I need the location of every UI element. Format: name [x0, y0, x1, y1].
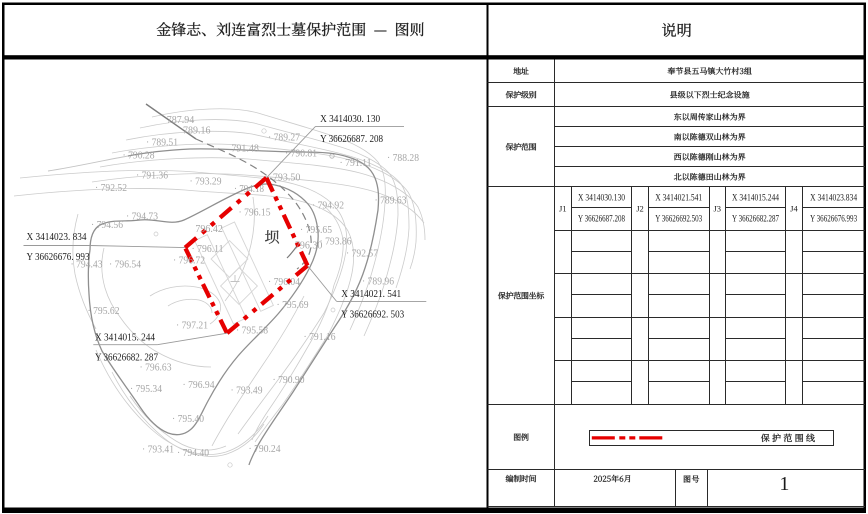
svg-text:· 793.86: · 793.86	[320, 237, 352, 248]
svg-text:X 3414030.130: X 3414030.130	[578, 192, 625, 202]
svg-text:· 791.16: · 791.16	[304, 332, 336, 343]
svg-text:· 795.62: · 795.62	[88, 306, 120, 317]
svg-text:· 789.51: · 789.51	[146, 138, 178, 149]
svg-text:· 795.69: · 795.69	[277, 300, 309, 311]
svg-text:X 3414023.834: X 3414023.834	[810, 192, 857, 202]
svg-text:791.48: 791.48	[231, 144, 259, 155]
svg-text:X 3414021.541: X 3414021.541	[655, 192, 702, 202]
svg-text:J3: J3	[713, 204, 721, 214]
svg-text:· 790.28: · 790.28	[123, 151, 155, 162]
svg-text:Y 36626676.993: Y 36626676.993	[810, 214, 857, 224]
svg-text:· 796.04: · 796.04	[268, 277, 301, 288]
svg-text:· 789.63: · 789.63	[375, 196, 407, 207]
svg-text:796.42: 796.42	[195, 224, 223, 235]
svg-text:787.94: 787.94	[167, 115, 195, 126]
svg-text:789.16: 789.16	[183, 126, 211, 137]
svg-text:· 790.81: · 790.81	[285, 149, 317, 160]
svg-text:1: 1	[779, 473, 789, 495]
svg-text:Y 36626687. 208: Y 36626687. 208	[320, 134, 383, 145]
svg-text:· 794.73: · 794.73	[126, 212, 158, 223]
svg-text:· 793.29: · 793.29	[190, 177, 222, 188]
svg-text:· 789.27: · 789.27	[268, 133, 300, 144]
svg-text:· 793.41: · 793.41	[142, 445, 174, 456]
svg-text:Y 36626682.287: Y 36626682.287	[732, 214, 779, 224]
svg-text:Y 36626692. 503: Y 36626692. 503	[341, 309, 404, 320]
svg-text:· 794.92: · 794.92	[312, 201, 344, 212]
svg-text:Y 36626676. 993: Y 36626676. 993	[27, 252, 90, 263]
svg-text:· 788.28: · 788.28	[387, 153, 419, 164]
svg-text:J4: J4	[790, 204, 798, 214]
svg-text:· 790.24: · 790.24	[249, 444, 282, 455]
svg-text:· 791.11: · 791.11	[340, 158, 372, 169]
svg-text:· 792.52: · 792.52	[95, 183, 127, 194]
svg-text:Y 36626682. 287: Y 36626682. 287	[95, 353, 158, 364]
svg-text:· 796.11: · 796.11	[192, 244, 224, 255]
svg-text:X 3414023. 834: X 3414023. 834	[27, 232, 88, 243]
svg-text:· 796.94: · 796.94	[183, 380, 216, 391]
svg-text:· 796.63: · 796.63	[140, 363, 172, 374]
svg-text:Y 36626687.208: Y 36626687.208	[578, 214, 625, 224]
svg-text:· 795.34: · 795.34	[130, 384, 163, 395]
svg-text:· 795.58: · 795.58	[236, 326, 268, 337]
svg-text:793.50: 793.50	[273, 173, 301, 184]
svg-text:· 791.36: · 791.36	[136, 171, 168, 182]
svg-text:· 796.15: · 796.15	[239, 208, 271, 219]
svg-text:· 797.21: · 797.21	[176, 321, 208, 332]
svg-text:796.30: 796.30	[295, 241, 323, 252]
svg-text:J2: J2	[636, 204, 644, 214]
svg-text:J1: J1	[559, 204, 567, 214]
svg-text:· 794.40: · 794.40	[177, 448, 209, 459]
svg-text:X 3414021. 541: X 3414021. 541	[341, 289, 401, 300]
svg-text:Y 36626692.503: Y 36626692.503	[655, 214, 702, 224]
svg-text:· 790.90: · 790.90	[273, 375, 305, 386]
svg-text:· 792.57: · 792.57	[346, 249, 378, 260]
svg-text:· 794.56: · 794.56	[91, 220, 123, 231]
svg-text:· 795.40: · 795.40	[172, 414, 204, 425]
svg-text:X 3414030. 130: X 3414030. 130	[320, 114, 380, 125]
svg-text:X 3414015.244: X 3414015.244	[732, 192, 779, 202]
svg-text:· 793.49: · 793.49	[231, 386, 263, 397]
svg-text:· 795.65: · 795.65	[300, 225, 332, 236]
svg-text:· 796.72: · 796.72	[173, 256, 205, 267]
svg-text:· 789.96: · 789.96	[362, 277, 394, 288]
svg-text:· 796.54: · 796.54	[109, 260, 142, 271]
svg-text:X 3414015. 244: X 3414015. 244	[95, 332, 156, 343]
